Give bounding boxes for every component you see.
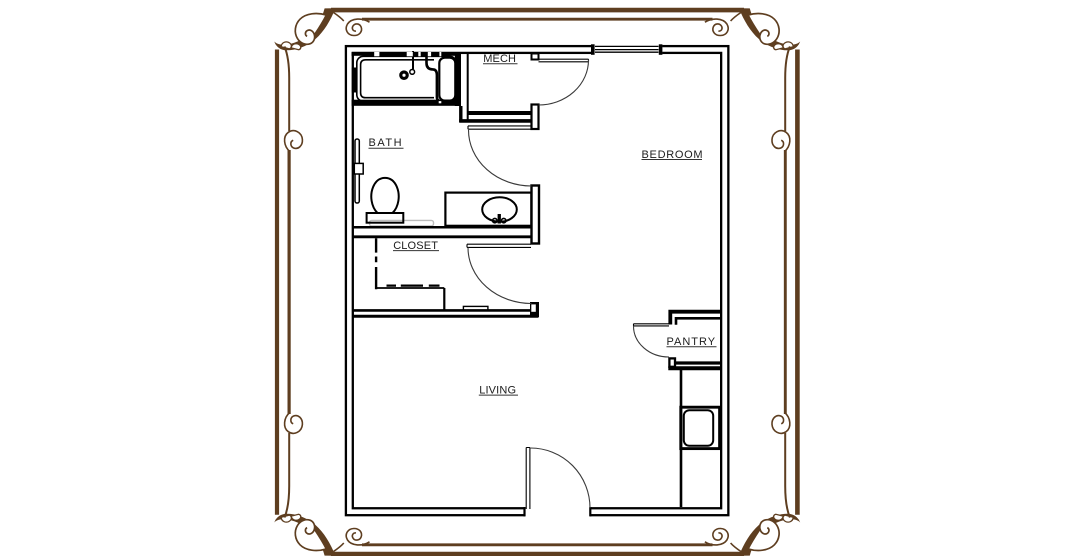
svg-text:LIVING: LIVING <box>479 384 516 396</box>
svg-text:MECH: MECH <box>483 53 516 65</box>
svg-text:CLOSET: CLOSET <box>393 240 438 252</box>
svg-text:BATH: BATH <box>369 137 404 149</box>
